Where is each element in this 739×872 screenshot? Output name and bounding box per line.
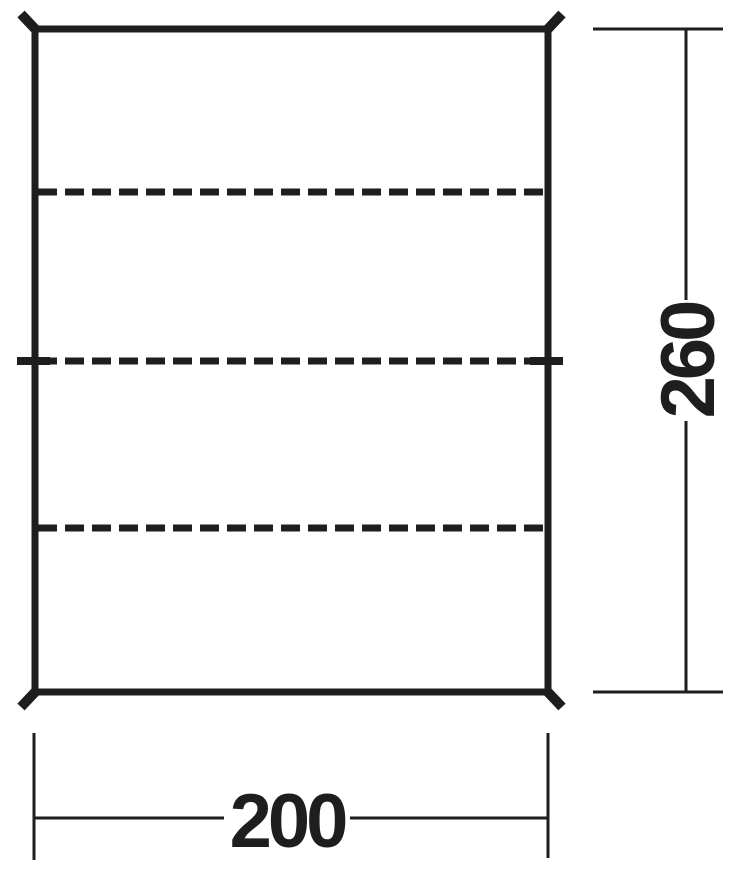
corner-tie-mark-bottom-right-icon [545, 689, 562, 707]
corner-tie-mark-bottom-left-icon [21, 689, 38, 707]
sheet-outline-group [17, 14, 563, 707]
width-dimension-label: 200 [230, 779, 347, 864]
corner-tie-mark-top-left-icon [21, 14, 38, 32]
height-dimension-label: 260 [646, 302, 731, 419]
dimension-diagram: 260 200 [0, 0, 739, 872]
corner-tie-mark-top-right-icon [545, 14, 562, 32]
technical-drawing-page: 260 200 [0, 0, 739, 872]
